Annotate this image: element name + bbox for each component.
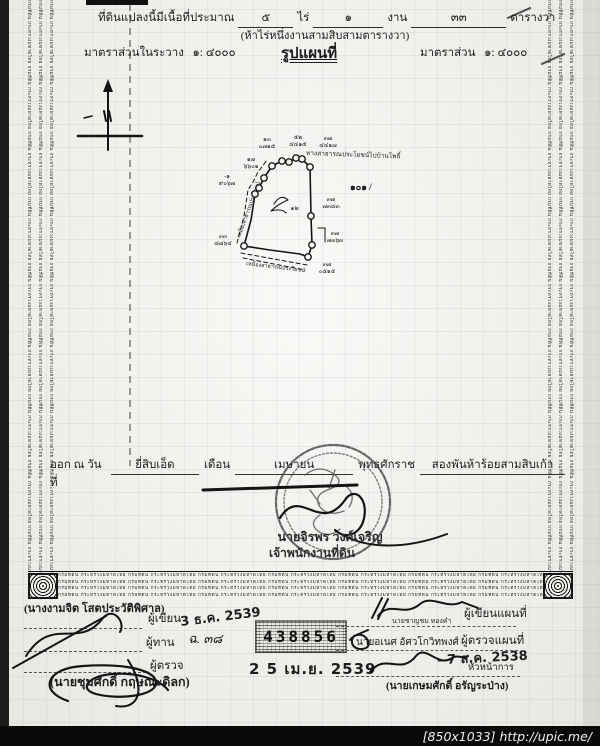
svg-text:๔๔๑๕: ๔๔๑๕ [289, 141, 307, 148]
svg-text:๙๐๖๗: ๙๐๖๗ [219, 181, 236, 187]
right-signatures [328, 594, 568, 686]
svg-text:๓๗: ๓๗ [323, 262, 332, 268]
svg-text:๐๕๑๕: ๐๕๑๕ [319, 268, 336, 275]
watermark-text: [850x1033] http://upic.me/ [423, 729, 592, 744]
parcel-number: ๑๐๑ / [350, 182, 372, 192]
sheet-scale-label: มาตราส่วนในระวาง [84, 47, 184, 59]
svg-text:๑๓: ๑๓ [263, 137, 271, 143]
map-scale-value: ๑: ๔๐๐๐ [484, 47, 527, 59]
road-label-top: ทางสาธารณประโยชน์ไปบ้านโพธิ์ [306, 148, 402, 160]
bracket-mark [318, 228, 325, 242]
svg-text:๗๓๖๓: ๗๓๖๓ [327, 238, 344, 244]
watermark-bar: [850x1033] http://upic.me/ [0, 726, 600, 746]
rai-label: ไร่ [297, 9, 309, 27]
svg-text:๓๗: ๓๗ [324, 136, 333, 142]
left-signatures [8, 596, 243, 711]
seal-emblem-scribble [305, 469, 352, 535]
svg-text:๑๗: ๑๗ [247, 157, 256, 163]
security-text-column: กรมที่ดิน กระทรวงมหาดไทย กรมที่ดิน กระทร… [566, 0, 574, 575]
scan-smudge-right [583, 0, 600, 726]
north-arrow-icon [72, 74, 156, 158]
svg-text:-๑: -๑ [224, 174, 230, 180]
security-text-row: กรมที่ดิน กระทรวงมหาดไทย กรมที่ดิน กระทร… [58, 586, 543, 593]
sheet-scale: มาตราส่วนในระวาง ๑: ๔๐๐๐ [84, 44, 236, 62]
inner-mark: ๑๒ [290, 205, 299, 212]
parcel-sketch-map: ทางสาธารณประโยชน์ไปบ้านโพธิ์ เหมืองสาธาร… [210, 126, 490, 306]
inner-scribble [271, 197, 288, 213]
map-scale-label: มาตราส่วน [420, 47, 475, 59]
security-text-column: กรมที่ดิน กระทรวงมหาดไทย กรมที่ดิน กระทร… [46, 0, 54, 600]
svg-text:๕๒: ๕๒ [294, 134, 303, 141]
svg-text:๗๓๘๓: ๗๓๘๓ [322, 204, 339, 210]
security-text-column: กรมที่ดิน กระทรวงมหาดไทย กรมที่ดิน กระทร… [24, 0, 32, 600]
svg-text:๘๗๖๔: ๘๗๖๔ [214, 241, 232, 247]
svg-text:๓๓: ๓๓ [219, 234, 227, 240]
wa-label: ตารางวา [510, 9, 555, 27]
svg-text:๓๗: ๓๗ [327, 197, 336, 203]
svg-text:๔๔๑๗: ๔๔๑๗ [319, 143, 337, 149]
area-prefix: ที่ดินแปลงนี้มีเนื้อที่ประมาณ [98, 9, 234, 27]
svg-text:๐๗๑๕: ๐๗๑๕ [259, 143, 276, 150]
scan-black-edge-top [86, 0, 148, 5]
parcel-boundary [244, 158, 312, 257]
security-text-column: กรมที่ดิน กระทรวงมหาดไทย กรมที่ดิน กระทร… [35, 0, 43, 600]
map-title: รูปแผนที่ [281, 41, 337, 65]
ngan-label: งาน [387, 9, 407, 27]
issued-prefix: ออก ณ วันที่ [50, 456, 106, 492]
land-officer-title: เจ้าพนักงานที่ดิน [232, 544, 392, 563]
security-border-left: กรมที่ดิน กระทรวงมหาดไทย กรมที่ดิน กระทร… [24, 0, 56, 600]
scanned-land-deed-page: กรมที่ดิน กระทรวงมหาดไทย กรมที่ดิน กระทร… [0, 0, 600, 746]
road-label-bottom: เหมืองสาธารณประโยชน์ [246, 259, 306, 274]
sheet-scale-value: ๑: ๔๐๐๐ [192, 47, 235, 59]
svg-text:๖๖๐๑: ๖๖๐๑ [243, 164, 258, 170]
svg-text:๓๗: ๓๗ [331, 231, 340, 237]
map-scale: มาตราส่วน ๑: ๔๐๐๐ [420, 44, 527, 62]
